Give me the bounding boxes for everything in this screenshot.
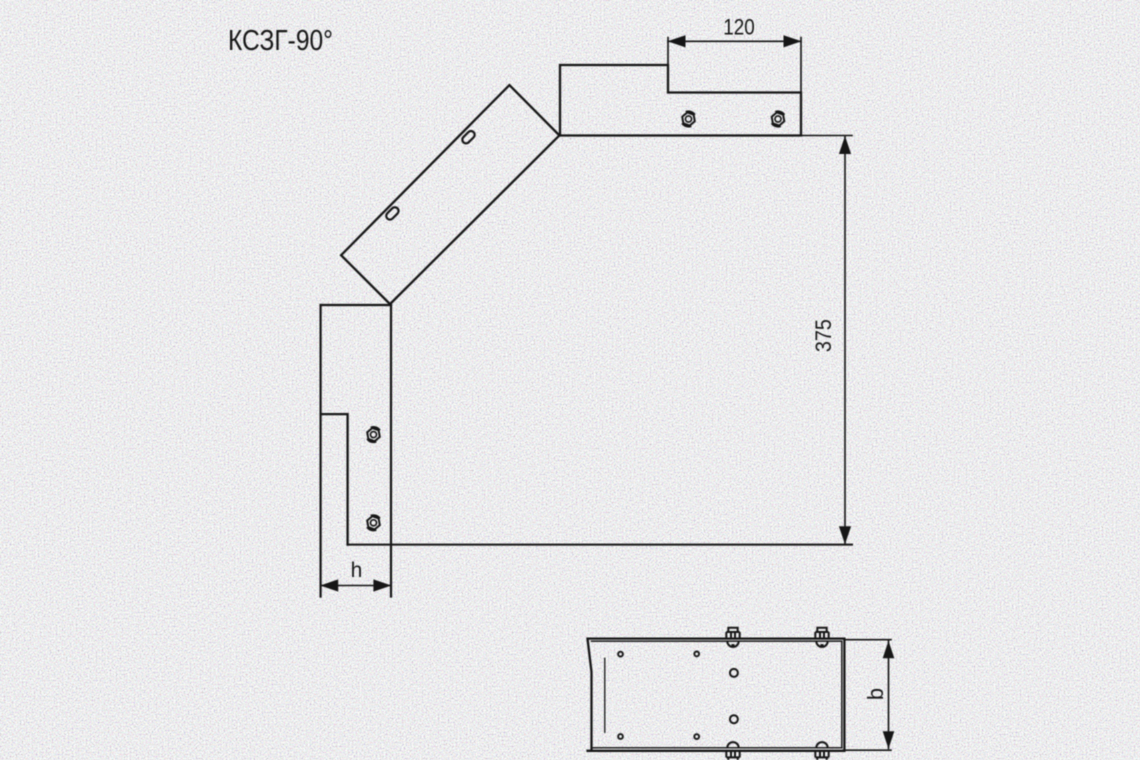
svg-text:b: b bbox=[863, 688, 888, 700]
svg-text:КСЗГ-90°: КСЗГ-90° bbox=[228, 25, 333, 57]
svg-text:120: 120 bbox=[723, 14, 755, 39]
svg-text:375: 375 bbox=[811, 319, 836, 352]
svg-text:h: h bbox=[351, 559, 363, 582]
